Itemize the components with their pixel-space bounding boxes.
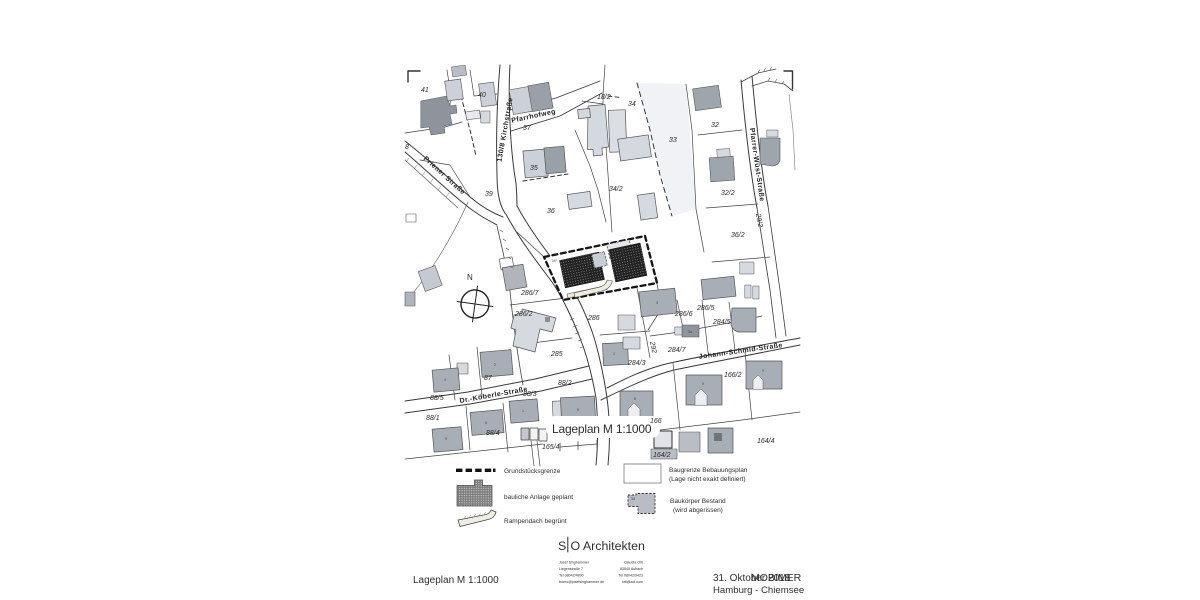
svg-text:8: 8	[634, 397, 636, 401]
svg-text:Rampendach begrünt: Rampendach begrünt	[504, 518, 567, 525]
svg-text:285: 285	[550, 351, 563, 358]
svg-text:164/4: 164/4	[757, 438, 775, 445]
svg-text:MOBIMER: MOBIMER	[751, 572, 802, 584]
svg-text:5: 5	[577, 408, 579, 412]
svg-text:3a: 3a	[688, 330, 692, 334]
svg-text:284/7: 284/7	[667, 347, 687, 354]
svg-text:32: 32	[711, 122, 719, 129]
svg-text:8: 8	[405, 144, 409, 151]
svg-text:83645 Aubach: 83645 Aubach	[620, 567, 643, 571]
svg-text:1: 1	[522, 409, 524, 413]
svg-text:Baugrenze Bebauungsplan: Baugrenze Bebauungsplan	[669, 467, 748, 474]
svg-text:9: 9	[445, 437, 447, 441]
svg-text:bauliche Anlage geplant: bauliche Anlage geplant	[504, 494, 573, 501]
svg-text:Josef Singhammer: Josef Singhammer	[559, 561, 590, 565]
svg-text:36/2: 36/2	[731, 232, 745, 239]
svg-text:Claudia Ortl: Claudia Ortl	[624, 561, 643, 565]
svg-text:N: N	[467, 273, 473, 282]
svg-text:9: 9	[702, 382, 704, 386]
svg-text:40: 40	[478, 92, 486, 99]
svg-text:4: 4	[444, 378, 446, 382]
svg-text:Baukörper Bestand: Baukörper Bestand	[670, 498, 726, 505]
svg-text:34/2: 34/2	[609, 186, 623, 193]
svg-text:39: 39	[485, 191, 493, 198]
svg-text:88/1: 88/1	[426, 415, 440, 422]
svg-text:286/5: 286/5	[696, 305, 715, 312]
svg-text:37: 37	[523, 125, 532, 132]
svg-text:6: 6	[485, 421, 487, 425]
svg-text:Grundstücksgrenze: Grundstücksgrenze	[504, 468, 561, 475]
svg-text:S: S	[558, 539, 566, 553]
svg-text:41: 41	[421, 87, 429, 94]
svg-text:Hamburg - Chiemsee: Hamburg - Chiemsee	[713, 585, 804, 596]
svg-text:164/2: 164/2	[653, 452, 671, 459]
svg-text:88/5: 88/5	[430, 395, 444, 402]
svg-text:2: 2	[494, 363, 496, 367]
svg-text:O Architekten: O Architekten	[571, 539, 645, 553]
svg-text:284/3: 284/3	[627, 360, 646, 367]
svg-text:ortl@aol.com: ortl@aol.com	[622, 580, 643, 584]
svg-text:3: 3	[656, 301, 658, 305]
svg-text:166/2: 166/2	[724, 372, 742, 379]
svg-text:88/2: 88/2	[558, 380, 572, 387]
svg-text:286/2: 286/2	[514, 311, 533, 318]
svg-text:286/6: 286/6	[674, 311, 693, 318]
svg-text:33: 33	[669, 137, 677, 144]
svg-text:284/5: 284/5	[712, 319, 731, 326]
svg-text:34: 34	[631, 497, 635, 501]
svg-text:35: 35	[530, 165, 538, 172]
svg-text:(Lage nicht exakt definiert): (Lage nicht exakt definiert)	[669, 476, 746, 483]
svg-text:88/4: 88/4	[486, 430, 500, 437]
svg-text:166: 166	[650, 418, 662, 425]
svg-text:286: 286	[587, 315, 600, 322]
svg-text:34: 34	[628, 101, 636, 108]
svg-text:Lageplan M 1:1000: Lageplan M 1:1000	[413, 575, 499, 586]
svg-text:buero@josefsinghammer.de: buero@josefsinghammer.de	[559, 580, 604, 584]
svg-text:Lageplan M 1:1000: Lageplan M 1:1000	[552, 422, 652, 436]
svg-text:165/4: 165/4	[542, 444, 560, 451]
svg-text:18/2: 18/2	[597, 94, 611, 101]
svg-text:9: 9	[762, 369, 764, 373]
svg-text:1: 1	[613, 352, 615, 356]
svg-text:87: 87	[484, 375, 493, 382]
svg-text:Liegenstraße 7: Liegenstraße 7	[559, 567, 583, 571]
svg-text:(wird abgerissen): (wird abgerissen)	[673, 507, 723, 514]
svg-text:286/7: 286/7	[520, 290, 540, 297]
svg-text:Tel 08042/9423: Tel 08042/9423	[618, 574, 643, 578]
svg-text:32/2: 32/2	[721, 190, 735, 197]
svg-text:36: 36	[547, 208, 555, 215]
svg-text:Tel 08042/4890: Tel 08042/4890	[559, 574, 584, 578]
